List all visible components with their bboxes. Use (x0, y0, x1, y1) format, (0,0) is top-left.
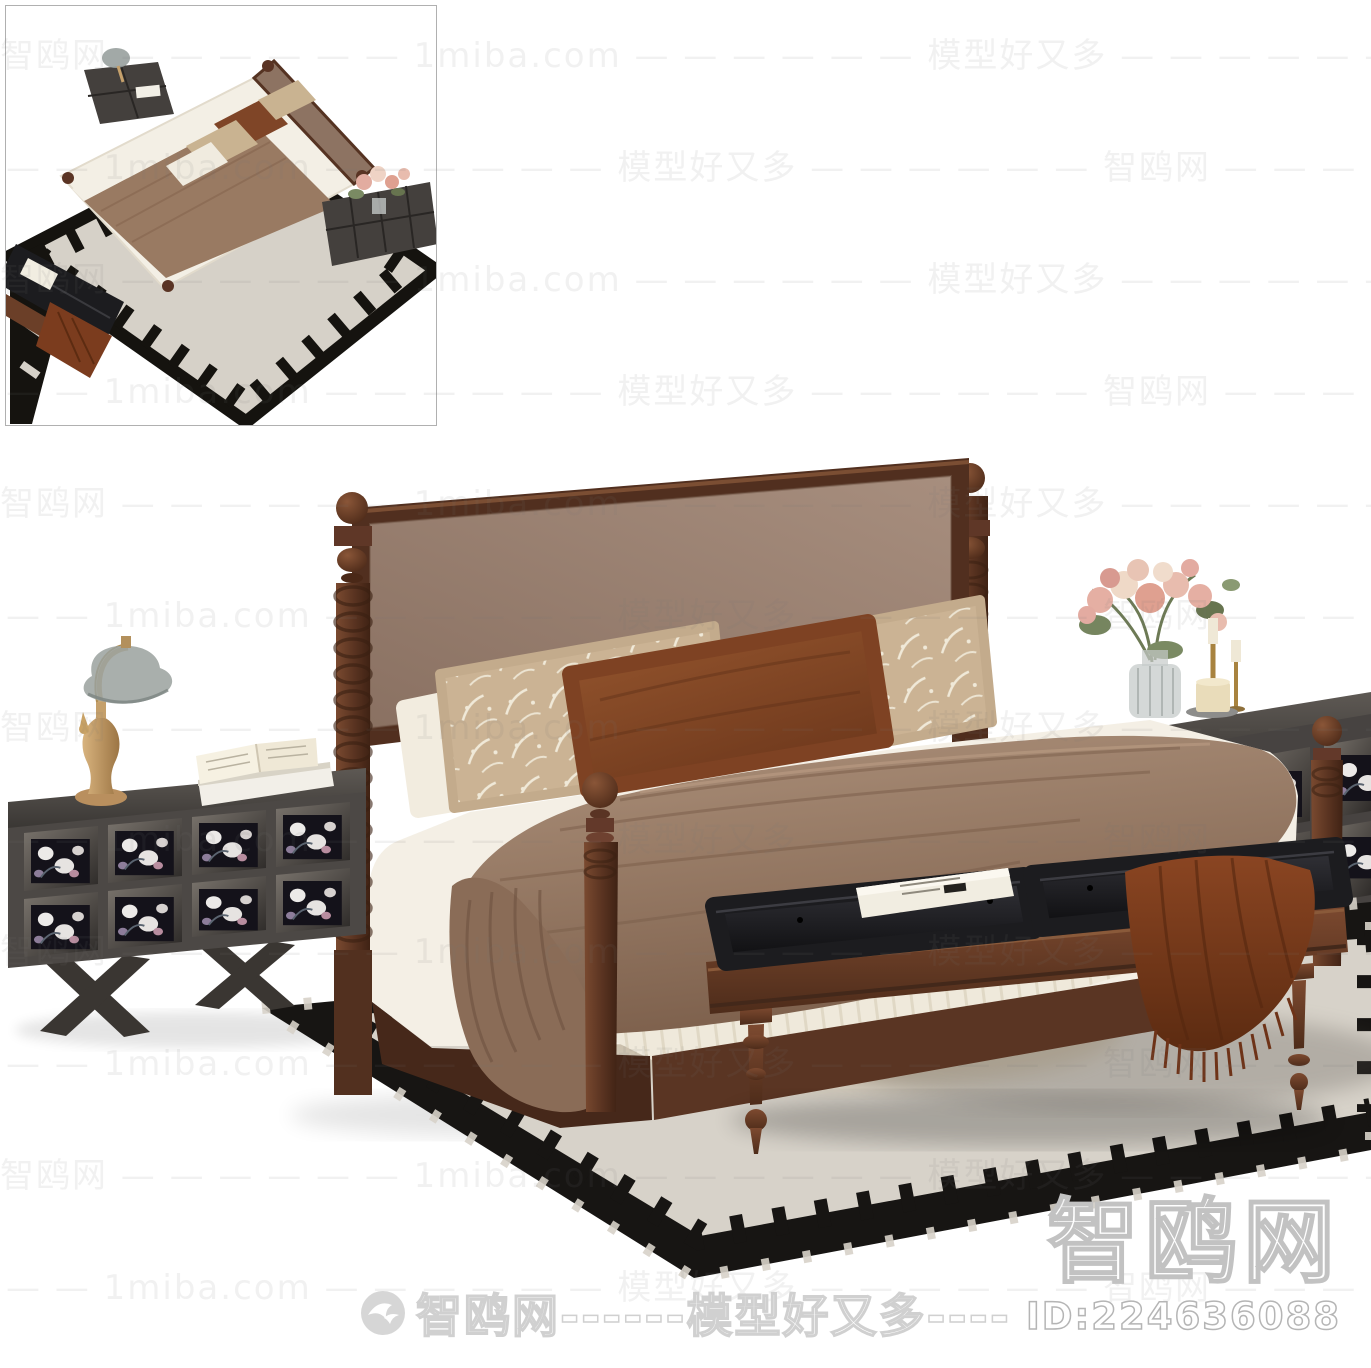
pillar-candle (1186, 678, 1238, 718)
glass-vase (1129, 650, 1181, 718)
inset-topview-render (6, 6, 436, 425)
rose-bouquet (1078, 559, 1240, 662)
bed-post-foot-left (582, 772, 618, 1112)
inset-nightstand (84, 48, 174, 124)
table-lamp (75, 636, 172, 806)
left-nightstand (8, 636, 366, 1037)
product-render-page: 智鸥网 — — — — — — 1miba.com — — — — — — 模型… (0, 0, 1371, 1368)
inset-thumbnail (5, 5, 437, 426)
